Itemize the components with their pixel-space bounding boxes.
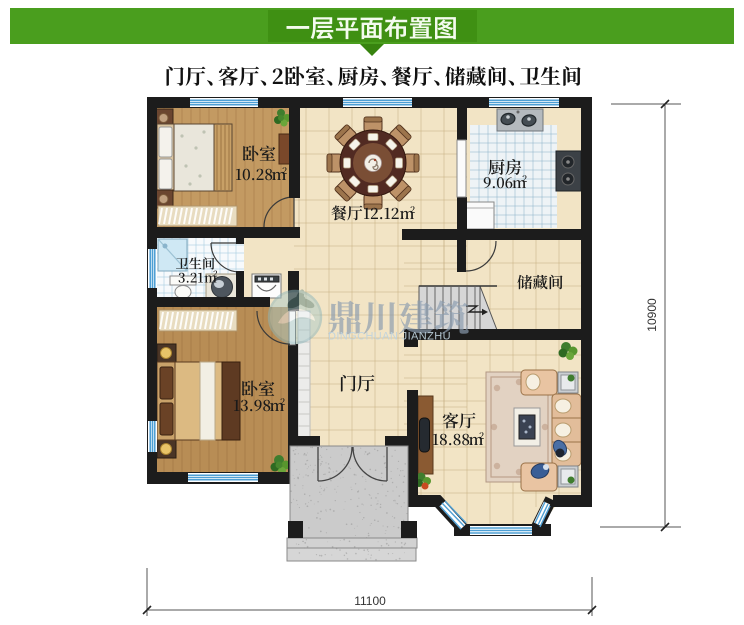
svg-text:DINGCHUAN JIANZHU: DINGCHUAN JIANZHU bbox=[328, 331, 451, 343]
svg-text:10900: 10900 bbox=[645, 298, 659, 332]
svg-text:11100: 11100 bbox=[354, 594, 386, 608]
